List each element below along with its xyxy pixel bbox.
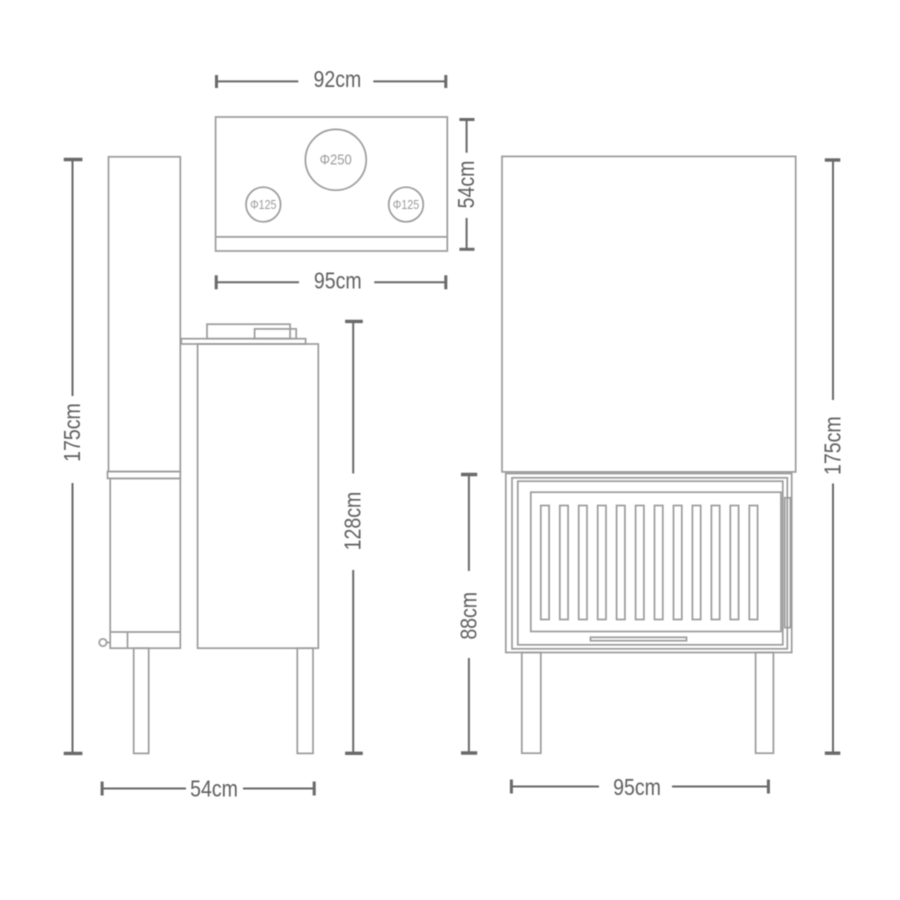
svg-text:54cm: 54cm: [454, 161, 480, 209]
svg-text:Φ125: Φ125: [393, 198, 420, 212]
svg-text:88cm: 88cm: [456, 592, 482, 640]
svg-text:95cm: 95cm: [314, 268, 362, 294]
svg-text:Φ250: Φ250: [320, 152, 352, 169]
svg-text:92cm: 92cm: [314, 67, 362, 93]
svg-text:95cm: 95cm: [613, 775, 661, 801]
svg-text:128cm: 128cm: [340, 492, 366, 551]
svg-text:Φ125: Φ125: [250, 198, 277, 212]
svg-text:175cm: 175cm: [820, 416, 846, 475]
svg-text:175cm: 175cm: [60, 403, 86, 462]
svg-text:54cm: 54cm: [190, 776, 238, 802]
